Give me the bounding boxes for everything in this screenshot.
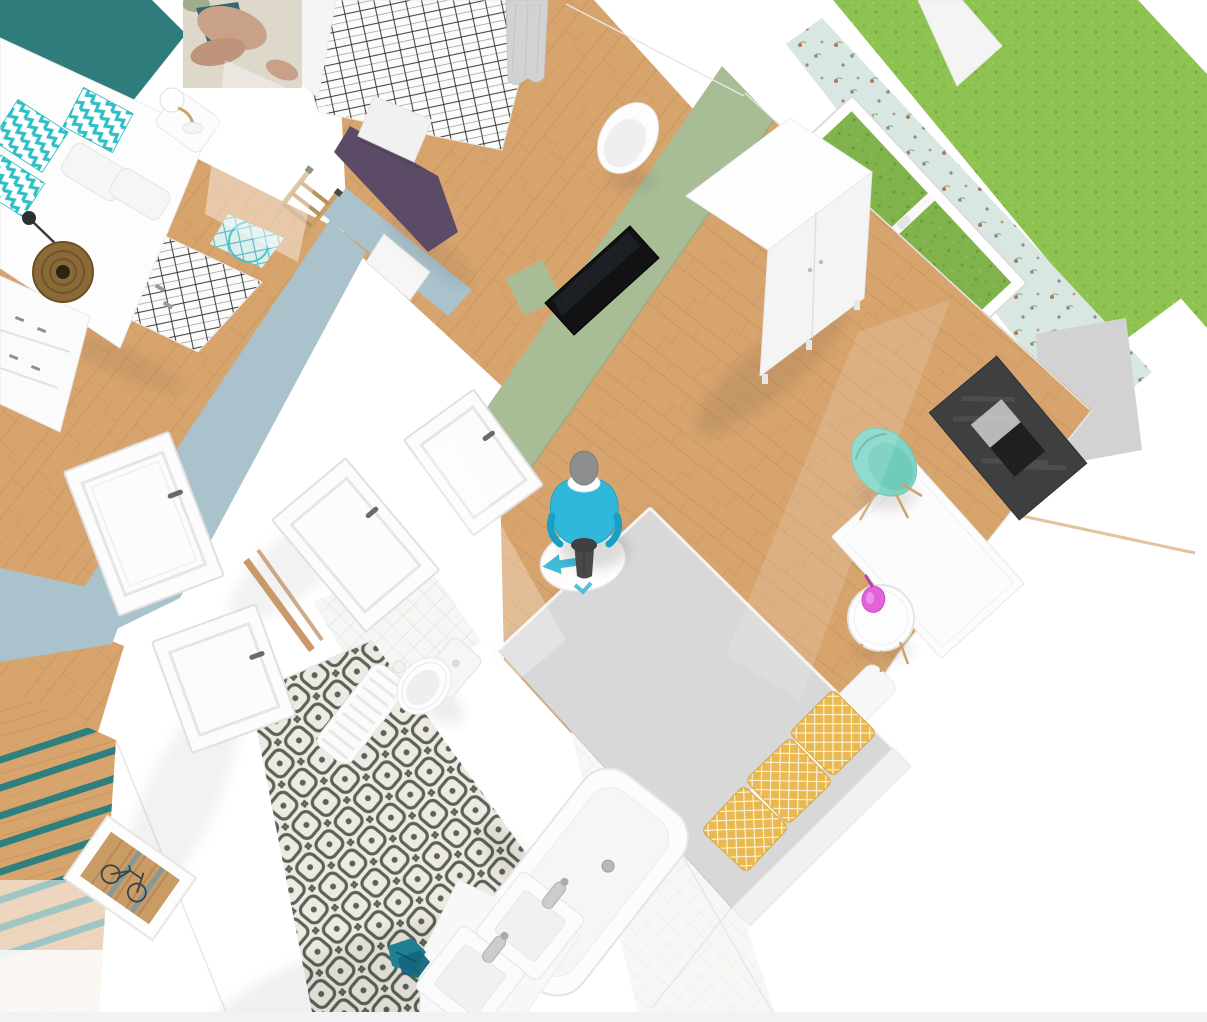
avatar-hands bbox=[571, 538, 597, 552]
wardrobe-handle-icon bbox=[819, 260, 823, 264]
canvas-bottom-edge bbox=[0, 1012, 1207, 1022]
avatar-head bbox=[570, 451, 598, 485]
pendant-canopy-icon bbox=[22, 211, 36, 225]
viewport-3d bbox=[0, 0, 1207, 1022]
tv-speaker-icon bbox=[563, 297, 569, 303]
tv-speaker-icon bbox=[582, 280, 588, 286]
wardrobe-handle-icon bbox=[808, 268, 812, 272]
